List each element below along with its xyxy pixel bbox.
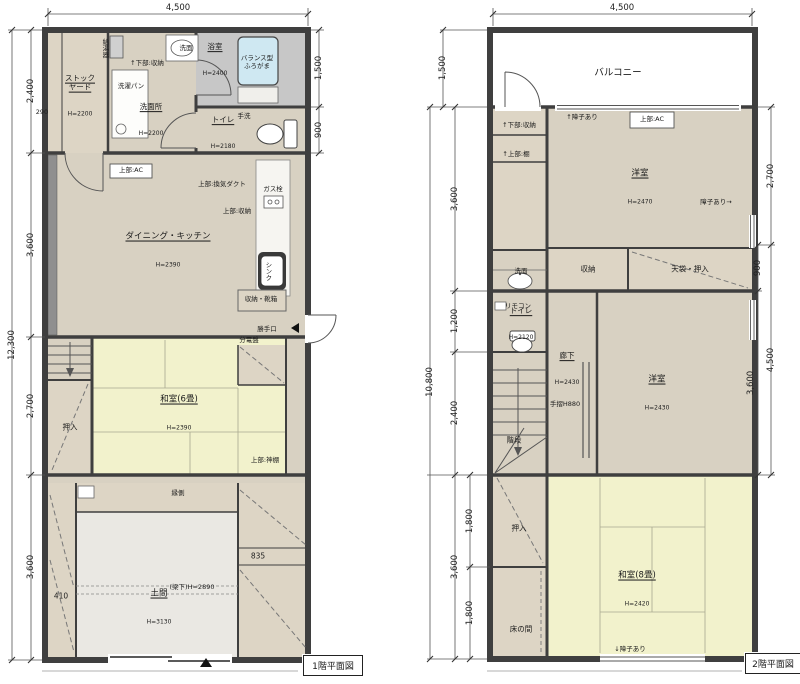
room-name: トイレ bbox=[509, 306, 534, 315]
f1-room-bath: 浴室 H=2400 bbox=[203, 23, 228, 97]
water-heater-icon bbox=[110, 36, 123, 58]
f2-room-toilet: トイレ H=2120 bbox=[509, 287, 534, 361]
room-name: 和室(8畳) bbox=[618, 571, 656, 581]
f1-room-dining-kitchen: ダイニング・キッチン H=2390 bbox=[125, 213, 210, 288]
f2-room-youshitsu-upper: 洋室 H=2470 bbox=[628, 150, 653, 225]
f2-room-shunou: 収納 bbox=[581, 265, 596, 274]
f2-room-balcony: バルコニー bbox=[594, 67, 641, 78]
f2-note-lower-storage: ↑下部:収納 bbox=[502, 122, 536, 130]
f1-note-gas: ガス栓 bbox=[263, 186, 283, 194]
room-name: 和室(6畳) bbox=[160, 395, 198, 405]
f2-dim-seg-3600a: 3,600 bbox=[450, 187, 460, 211]
f1-dim-right-900: 900 bbox=[314, 122, 324, 138]
f1-note-hand-wash: 手洗 bbox=[238, 113, 251, 121]
room-height: H=3130 bbox=[147, 618, 172, 625]
f1-note-kamidana: 上部:神棚 bbox=[251, 457, 279, 465]
f1-note-sink: シンク bbox=[263, 261, 271, 281]
room-height: H=2420 bbox=[618, 600, 656, 607]
room-name: 廊下 bbox=[555, 351, 580, 360]
room-height: H=2470 bbox=[628, 198, 653, 205]
f2-dim-seg-2400: 2,400 bbox=[450, 401, 460, 425]
f1-dim-835: 835 bbox=[251, 552, 265, 561]
f2-dim-inner-1800a: 1,800 bbox=[465, 509, 475, 533]
f1-note-ac: 上部:AC bbox=[119, 167, 143, 175]
room-height: H=2200 bbox=[139, 131, 164, 138]
f2-note-upper-shelf: ↑上部:棚 bbox=[502, 151, 529, 159]
f1-room-washroom: 洗面所 H=2200 bbox=[139, 83, 164, 157]
f1-dim-seg-3600a: 3,600 bbox=[26, 233, 36, 257]
floorplan-geometry bbox=[0, 0, 800, 684]
f1-dim-seg-2700: 2,700 bbox=[26, 394, 36, 418]
f2-dim-right-2700: 2,700 bbox=[766, 164, 776, 188]
room-name: ストック ヤード bbox=[65, 74, 95, 92]
room-height: H=2180 bbox=[211, 144, 236, 151]
f2-room-washitsu8: 和室(8畳) H=2420 bbox=[618, 552, 656, 627]
f1-dim-right-1500: 1,500 bbox=[314, 56, 324, 80]
f2-dim-top: 4,500 bbox=[610, 3, 634, 13]
f2-note-shoji-top: ↑障子あり bbox=[566, 114, 597, 122]
f1-room-engawa: 縁側 bbox=[172, 490, 185, 498]
room-height: H=2390 bbox=[160, 424, 198, 431]
f2-note-washbasin: 洗面 bbox=[515, 268, 528, 276]
f1-dim-290: 290 bbox=[36, 109, 48, 117]
f2-dim-seg-3600b: 3,600 bbox=[450, 555, 460, 579]
f1-room-stockyard: ストック ヤード H=2200 bbox=[65, 55, 95, 138]
f2-note-shoji-bottom: ↓障子あり bbox=[614, 646, 645, 654]
f2-dim-balcony-1500: 1,500 bbox=[438, 56, 448, 80]
f1-dim-top: 4,500 bbox=[166, 3, 190, 13]
f2-room-kaidan: 階段 bbox=[507, 436, 522, 445]
room-height: H=2430 bbox=[555, 380, 580, 387]
f1-note-breaker-panel: 分電盤 bbox=[239, 337, 259, 345]
f1-dim-seg-3600b: 3,600 bbox=[26, 555, 36, 579]
f1-note-vent-duct: 上部:換気ダクト bbox=[198, 181, 246, 189]
f1-beam-note: (梁下)H=2890 bbox=[170, 584, 215, 592]
f2-dim-seg-1200: 1,200 bbox=[450, 309, 460, 333]
f1-dim-seg-2400: 2,400 bbox=[26, 79, 36, 103]
gas-outlet-icon bbox=[264, 196, 283, 208]
f1-dim-410: 410 bbox=[54, 592, 68, 601]
room-name: トイレ bbox=[211, 115, 236, 124]
floorplan-canvas: 4,500 12,300 2,400 3,600 2,700 3,600 1,5… bbox=[0, 0, 800, 684]
room-height: H=2430 bbox=[645, 404, 670, 411]
f1-room-doma: 土間 H=3130 bbox=[147, 570, 172, 645]
f2-dim-inner-1800b: 1,800 bbox=[465, 601, 475, 625]
toilet-icon bbox=[257, 124, 283, 144]
room-height: H=2120 bbox=[509, 335, 534, 342]
f1-note-shoe-cabinet: 収納・靴箱 bbox=[245, 296, 278, 304]
room-name: ダイニング・キッチン bbox=[125, 232, 210, 242]
room-name: 洗面所 bbox=[139, 102, 164, 111]
room-height: H=2400 bbox=[203, 71, 228, 78]
f2-note-ac: 上部:AC bbox=[640, 116, 664, 124]
room-height: H=2390 bbox=[125, 261, 210, 268]
f1-room-washitsu6: 和室(6畳) H=2390 bbox=[160, 376, 198, 451]
f2-room-tokonoma: 床の間 bbox=[510, 625, 533, 634]
f2-dim-right-900: 900 bbox=[753, 260, 763, 276]
f2-dim-right-4500: 4,500 bbox=[766, 348, 776, 372]
f2-room-rouka: 廊下 H=2430 bbox=[555, 332, 580, 406]
f2-title-box: 2階平面図 bbox=[745, 653, 800, 674]
room-height: H=2200 bbox=[65, 111, 95, 118]
f1-room-toilet: トイレ H=2180 bbox=[211, 96, 236, 170]
f2-dim-left-total: 10,800 bbox=[425, 367, 435, 397]
f1-room-oshiire: 押入 bbox=[63, 423, 78, 432]
room-name: 洋室 bbox=[645, 375, 670, 385]
f1-title-box: 1階平面図 bbox=[303, 655, 363, 676]
f1-note-washbasin: 洗面 bbox=[180, 45, 193, 53]
f2-room-youshitsu-lower: 洋室 H=2430 bbox=[645, 356, 670, 431]
room-name: 洋室 bbox=[628, 169, 653, 179]
f1-note-lower-storage: ↑下部:収納 bbox=[130, 60, 164, 68]
f2-room-oshiire: 押入 bbox=[512, 524, 527, 533]
f1-note-bath-heater: バランス型 ふろがま bbox=[241, 55, 273, 71]
f2-note-shoji-right: 障子あり→ bbox=[700, 199, 731, 207]
f1-note-back-door: 勝手口 bbox=[257, 326, 277, 334]
f1-dim-left-total: 12,300 bbox=[7, 330, 17, 360]
room-name: 土間 bbox=[147, 589, 172, 599]
f1-note-upper-storage: 上部:収納 bbox=[223, 208, 251, 216]
f1-note-water-heater: 給湯器 bbox=[100, 38, 108, 58]
f2-room-tenbukuro: 天袋・押入 bbox=[671, 265, 709, 274]
f2-dim-right-3600: 3,600 bbox=[746, 371, 756, 395]
room-name: 浴室 bbox=[203, 42, 228, 51]
